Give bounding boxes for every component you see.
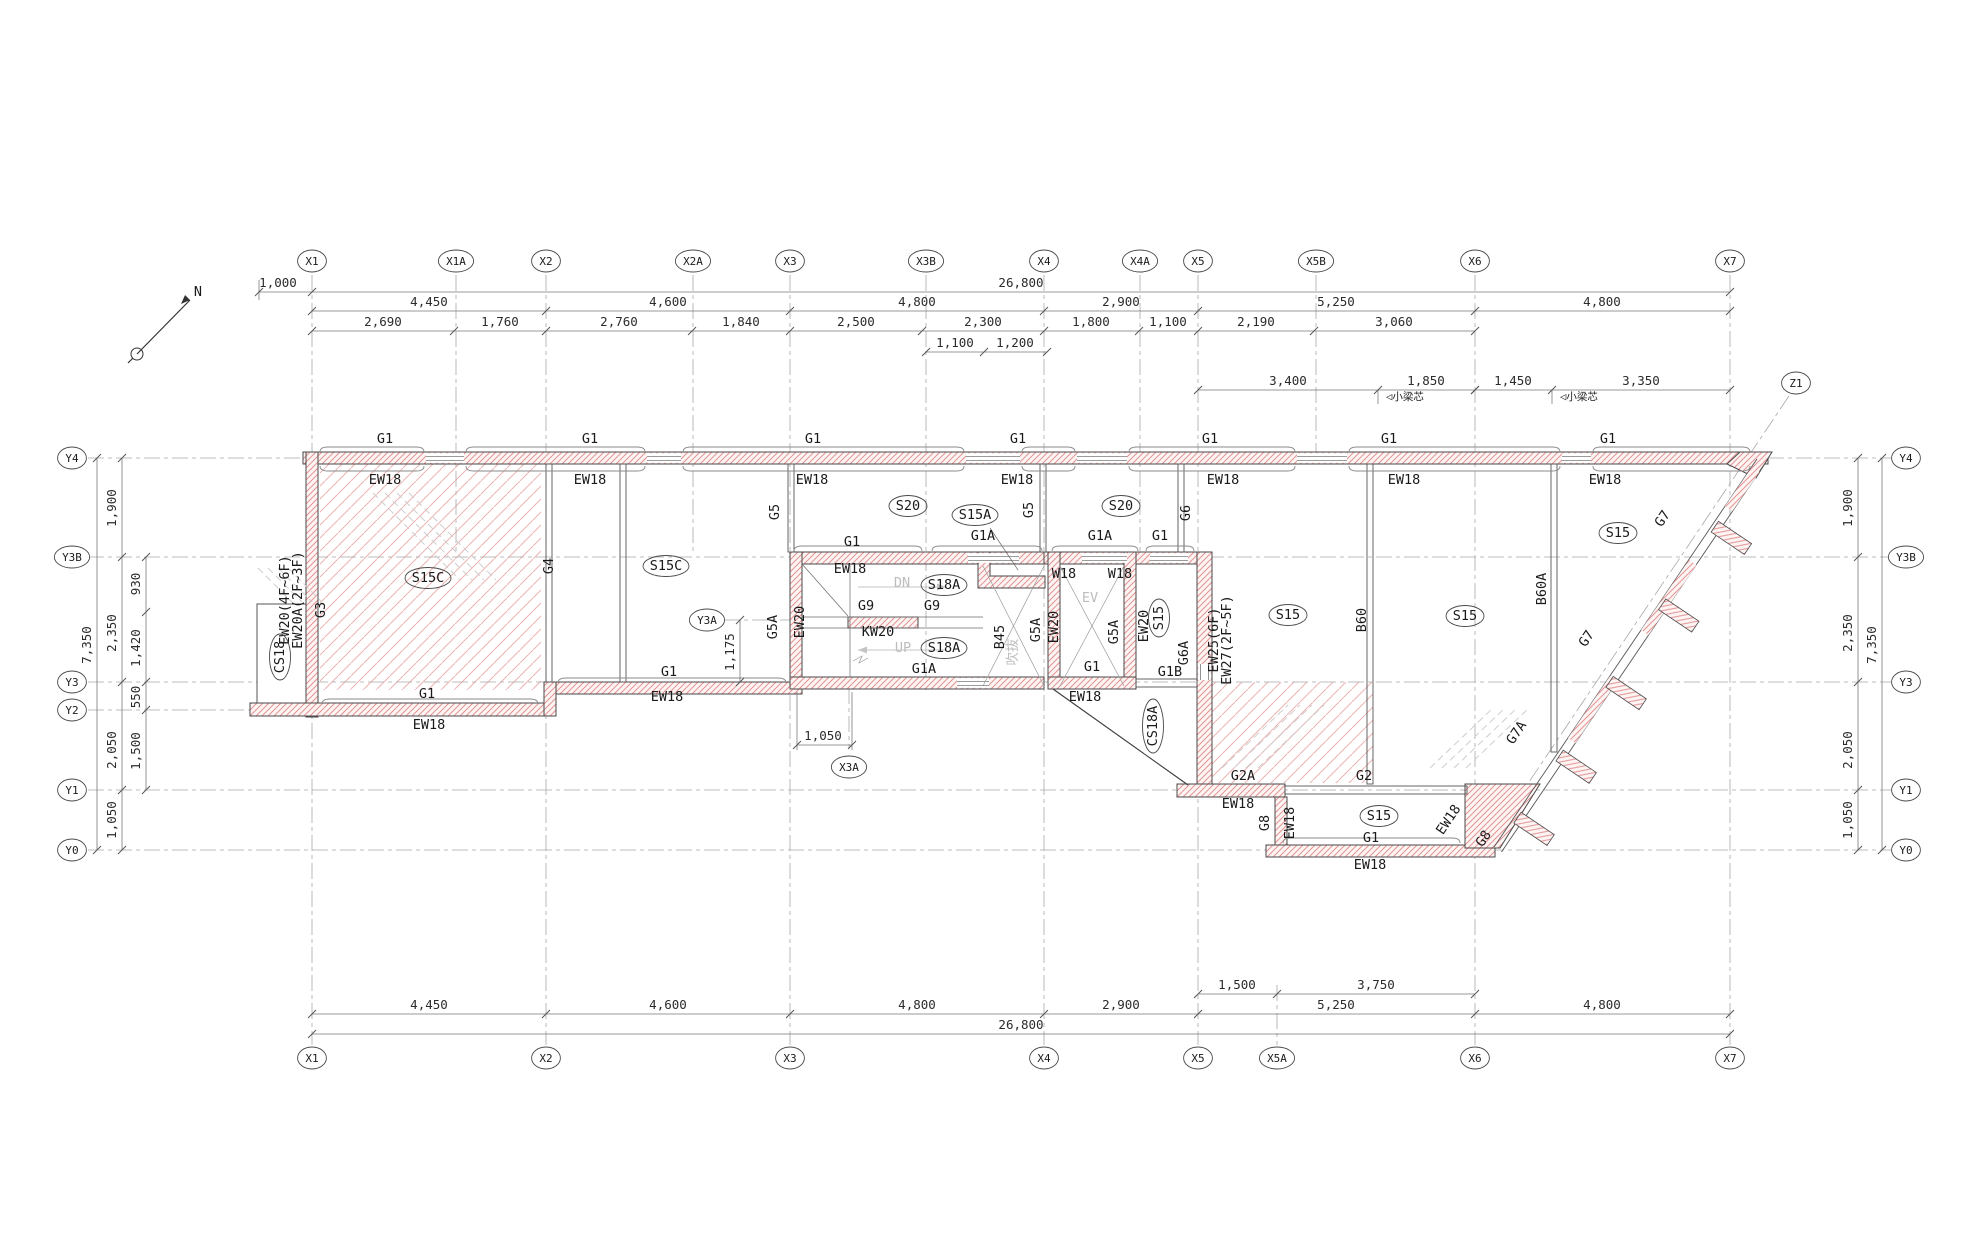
label-w18: W18	[1052, 566, 1076, 582]
beam-stub	[1606, 676, 1646, 709]
label-text: EW18	[1354, 857, 1387, 873]
grid-bubble-x1a: X1A	[438, 250, 473, 272]
grid-bubble-label: X1A	[446, 255, 466, 268]
label-text: G9	[858, 598, 874, 614]
label-g7: G7	[1652, 508, 1674, 530]
label-text: EW18	[651, 689, 684, 705]
label-g2a: G2A	[1231, 768, 1255, 784]
label-g7: G7	[1576, 628, 1598, 650]
label-text: G4	[541, 558, 557, 574]
label-ew18: EW18	[413, 717, 446, 733]
dim-text: 4,450	[410, 294, 448, 309]
label-g1a: G1A	[971, 528, 995, 544]
label-text: W18	[1052, 566, 1076, 582]
label-g1a: G1A	[912, 661, 936, 677]
label-g5: G5	[1021, 502, 1037, 518]
label-text: UP	[895, 640, 911, 656]
dim-text: 4,600	[649, 294, 687, 309]
label-g1: G1	[1152, 528, 1168, 544]
label-text: S20	[1109, 498, 1133, 514]
label-ew18: EW18	[369, 472, 402, 488]
stair-break-mark	[853, 656, 868, 663]
label-text: G5	[1021, 502, 1037, 518]
grid-bubble-y4: Y4	[58, 447, 87, 469]
grid-bubble-label: X5	[1191, 255, 1204, 268]
label-text: G1	[1010, 431, 1026, 447]
grid-bubble-x4a: X4A	[1122, 250, 1157, 272]
label-text: EW18	[834, 561, 867, 577]
beam-stub	[1659, 599, 1699, 632]
label-text: G9	[924, 598, 940, 614]
label-text: S15	[1151, 606, 1167, 630]
label-ev: EV	[1082, 590, 1098, 606]
grid-bubble-label: X6	[1468, 1052, 1481, 1065]
beam-bracket	[1593, 447, 1750, 452]
label-text: EW18	[1069, 689, 1102, 705]
wall-x1	[306, 452, 318, 717]
label-g1: G1	[661, 664, 677, 680]
dim-text: 4,800	[898, 997, 936, 1012]
grid-bubble-x2a: X2A	[675, 250, 710, 272]
beam-bracket	[683, 466, 964, 471]
label-text: G5	[767, 504, 783, 520]
label-s20: S20	[1102, 496, 1140, 517]
label-g5a: G5A	[765, 615, 781, 639]
label-text: G1B	[1158, 664, 1182, 680]
girder-g5-left	[788, 464, 794, 552]
grid-bubble-label: Y3	[1899, 676, 1912, 689]
label-w18: W18	[1108, 566, 1132, 582]
structural-plan-drawing: 1,00026,8004,4504,6004,8002,9005,2504,80…	[0, 0, 1980, 1260]
wall-y4	[303, 452, 1768, 464]
dim-text: 1,050	[104, 801, 119, 839]
grid-bubble-label: X3	[783, 1052, 796, 1065]
dim-text: 2,690	[364, 314, 402, 329]
dim-text: 550	[128, 686, 143, 709]
label-ew18: EW18	[1354, 857, 1387, 873]
label-text: W18	[1108, 566, 1132, 582]
beam-bracket	[1349, 466, 1560, 471]
label-text: G1A	[1088, 528, 1112, 544]
wall-step	[544, 682, 556, 716]
label-ew18: EW18	[1001, 472, 1034, 488]
dim-text: 2,190	[1237, 314, 1275, 329]
dim-text: 3,750	[1357, 977, 1395, 992]
dim-text: 1,840	[722, 314, 760, 329]
label-g9: G9	[858, 598, 874, 614]
label-ew20a2f3f: EW20A(2F~3F)	[290, 551, 306, 649]
label-text: G1	[377, 431, 393, 447]
label-text: 吹抜	[1005, 638, 1021, 666]
dim-text: 1,900	[1840, 489, 1855, 527]
dim-text: 2,300	[964, 314, 1002, 329]
label-ew18: EW18	[1222, 796, 1255, 812]
label-ew18: EW18	[1433, 802, 1464, 838]
label-s15c: S15C	[643, 556, 689, 577]
dim-text: 1,175	[722, 633, 737, 671]
dim-text: 2,760	[600, 314, 638, 329]
label-s20: S20	[889, 496, 927, 517]
label-text: G3	[313, 602, 329, 618]
label-text: EW18	[1282, 807, 1298, 840]
label-ew20: EW20	[792, 606, 808, 639]
beam-bracket	[1052, 546, 1138, 551]
label-n: N	[194, 284, 202, 300]
grid-bubble-x3a: X3A	[831, 756, 866, 778]
label-text: ◁小梁芯	[1560, 390, 1598, 403]
label-text: G7A	[1503, 718, 1530, 747]
label-text: EW18	[1222, 796, 1255, 812]
label-dn: DN	[894, 575, 910, 591]
label-text: EW18	[796, 472, 829, 488]
label-ew272f5f: EW27(2F~5F)	[1219, 595, 1235, 684]
grid-bubble-label: X7	[1723, 1052, 1736, 1065]
grid-bubble-x7: X7	[1716, 1047, 1745, 1069]
dim-text: 4,800	[1583, 294, 1621, 309]
grid-bubble-label: X7	[1723, 255, 1736, 268]
label-g1b: G1B	[1158, 664, 1182, 680]
dim-text: 1,760	[481, 314, 519, 329]
member-labels: G1G1G1G1G1G1G1EW18EW18EW18EW18EW18EW18EW…	[194, 284, 1674, 873]
grid-bubble-x5a: X5A	[1259, 1047, 1294, 1069]
wall-y2	[250, 703, 556, 716]
label-: ◁小梁芯	[1560, 390, 1598, 403]
grid-bubble-x2: X2	[532, 1047, 561, 1069]
label-text: S15	[1453, 608, 1477, 624]
label-g7a: G7A	[1503, 718, 1530, 747]
label-text: CS18	[272, 641, 288, 674]
grid-bubble-x4: X4	[1030, 1047, 1059, 1069]
label-g1: G1	[582, 431, 598, 447]
dim-text: 4,800	[1583, 997, 1621, 1012]
dim-text: 1,850	[1407, 373, 1445, 388]
beam-stub	[1711, 521, 1751, 554]
label-text: G1A	[971, 528, 995, 544]
grid-bubble-label: X6	[1468, 255, 1481, 268]
grid-bubble-x3: X3	[776, 250, 805, 272]
grid-bubble-label: X4	[1037, 1052, 1051, 1065]
label-text: G1A	[912, 661, 936, 677]
grid-bubble-x4: X4	[1030, 250, 1059, 272]
label-text: G1	[1084, 659, 1100, 675]
label-text: B60	[1354, 608, 1370, 632]
label-text: EW20	[792, 606, 808, 639]
label-text: EW18	[1433, 802, 1464, 838]
label-g1: G1	[1084, 659, 1100, 675]
arrowhead	[858, 647, 867, 654]
label-text: EW20A(2F~3F)	[290, 551, 306, 649]
grid-bubble-y3b: Y3B	[54, 546, 89, 568]
label-ew18: EW18	[651, 689, 684, 705]
grid-bubble-label: X5B	[1306, 255, 1326, 268]
label-text: S15	[1276, 607, 1300, 623]
label-g1: G1	[1010, 431, 1026, 447]
label-text: EV	[1082, 590, 1098, 606]
dim-text: 1,100	[936, 335, 974, 350]
dim-text: 3,400	[1269, 373, 1307, 388]
dim-text: 5,250	[1317, 294, 1355, 309]
grid-bubble-y1: Y1	[58, 779, 87, 801]
dim-text: 1,900	[104, 489, 119, 527]
grid-bubble-y2: Y2	[58, 699, 87, 721]
grid-bubble-label: X4A	[1130, 255, 1150, 268]
dim-text: 4,450	[410, 997, 448, 1012]
grid-bubble-label: X2A	[683, 255, 703, 268]
grid-bubble-y4: Y4	[1892, 447, 1921, 469]
beam-bracket	[1593, 466, 1750, 471]
dim-text: 2,500	[837, 314, 875, 329]
label-text: EW18	[369, 472, 402, 488]
label-g3: G3	[313, 602, 329, 618]
wall-stair-bottom	[790, 677, 1044, 689]
label-text: G1	[582, 431, 598, 447]
label-text: S15A	[959, 507, 992, 523]
grid-bubble-label: Y0	[1899, 844, 1912, 857]
label-up: UP	[895, 640, 911, 656]
grid-bubble-label: Y1	[65, 784, 78, 797]
grid-bubble-label: Y3B	[62, 551, 82, 564]
label-text: KW20	[862, 624, 895, 640]
dim-text: 7,350	[79, 626, 94, 664]
grid-bubble-x5: X5	[1184, 1047, 1213, 1069]
girder-partition	[620, 464, 626, 682]
grid-bubble-x6: X6	[1461, 1047, 1490, 1069]
label-g1a: G1A	[1088, 528, 1112, 544]
girder-b60a	[1551, 464, 1557, 752]
label-text: G2	[1356, 768, 1372, 784]
label-text: G6A	[1176, 641, 1192, 665]
label-text: G1	[1600, 431, 1616, 447]
wall-ev-bottom	[1048, 677, 1136, 689]
grid-bubble-y3b: Y3B	[1888, 546, 1923, 568]
label-g5a: G5A	[1106, 620, 1122, 644]
label-text: S15C	[412, 570, 445, 586]
label-s15: S15	[1599, 523, 1637, 544]
label-text: G1	[844, 534, 860, 550]
grid-bubble-y3: Y3	[58, 671, 87, 693]
label-text: G1	[419, 686, 435, 702]
label-g6: G6	[1178, 505, 1194, 521]
label-text: DN	[894, 575, 910, 591]
grid-bubble-label: X3B	[916, 255, 936, 268]
label-text: G1	[1363, 830, 1379, 846]
grid-bubble-y3a: Y3A	[689, 609, 724, 631]
dim-text: 1,420	[128, 629, 143, 667]
label-text: S15	[1606, 525, 1630, 541]
label-s15: S15	[1149, 599, 1170, 637]
label-text: G1	[1152, 528, 1168, 544]
dim-text: 1,050	[1840, 801, 1855, 839]
label-s15c: S15C	[405, 568, 451, 589]
beam-bracket	[320, 447, 424, 452]
grid-bubble-label: Y3	[65, 676, 78, 689]
grid-bubble-label: Z1	[1789, 377, 1802, 390]
dim-text: 1,100	[1149, 314, 1187, 329]
label-s18a: S18A	[921, 575, 967, 596]
label-text: EW18	[1589, 472, 1622, 488]
grid-bubble-x5b: X5B	[1298, 250, 1333, 272]
north-arrow	[128, 295, 190, 363]
dim-text: 1,000	[259, 275, 297, 290]
label-ew18: EW18	[1282, 807, 1298, 840]
label-text: EW18	[1207, 472, 1240, 488]
beam-bracket	[1349, 447, 1560, 452]
dim-text: 26,800	[998, 275, 1043, 290]
grid-bubble-x5: X5	[1184, 250, 1213, 272]
label-s15: S15	[1446, 606, 1484, 627]
beam-bracket	[683, 447, 964, 452]
label-s18a: S18A	[921, 638, 967, 659]
label-text: G7	[1652, 508, 1674, 530]
label-ew18: EW18	[1589, 472, 1622, 488]
label-g1: G1	[1600, 431, 1616, 447]
label-g1: G1	[419, 686, 435, 702]
label-ew18: EW18	[1069, 689, 1102, 705]
label-text: G5A	[765, 615, 781, 639]
label-text: EW18	[1388, 472, 1421, 488]
beam-bracket	[1129, 466, 1295, 471]
grid-bubble-label: Y1	[1899, 784, 1912, 797]
grid-bubble-label: Y2	[65, 704, 78, 717]
label-g5a: G5A	[1028, 618, 1044, 642]
label-: 吹抜	[1005, 638, 1021, 666]
label-text: EW18	[574, 472, 607, 488]
label-text: S18A	[928, 640, 961, 656]
label-cs18a: CS18A	[1143, 699, 1164, 753]
grid-bubble-x1: X1	[298, 250, 327, 272]
label-s15a: S15A	[952, 505, 998, 526]
dim-text: 2,350	[104, 614, 119, 652]
label-g5: G5	[767, 504, 783, 520]
grid-bubble-label: X4	[1037, 255, 1051, 268]
label-g1: G1	[844, 534, 860, 550]
grid-bubble-label: Y0	[65, 844, 78, 857]
dim-text: 2,350	[1840, 614, 1855, 652]
dim-text: 1,800	[1072, 314, 1110, 329]
dim-text: 7,350	[1864, 626, 1879, 664]
dim-text: 2,050	[1840, 731, 1855, 769]
dim-text: 26,800	[998, 1017, 1043, 1032]
label-g4: G4	[541, 558, 557, 574]
grid-bubble-label: X1	[305, 255, 318, 268]
label-kw20: KW20	[862, 624, 895, 640]
label-g1: G1	[1202, 431, 1218, 447]
label-g6a: G6A	[1176, 641, 1192, 665]
label-ew18: EW18	[574, 472, 607, 488]
label-b60a: B60A	[1534, 573, 1550, 606]
grid-bubble-x6: X6	[1461, 250, 1490, 272]
label-s15: S15	[1269, 605, 1307, 626]
label-text: EW18	[1001, 472, 1034, 488]
label-cs18: CS18	[270, 634, 291, 680]
grid-bubble-label: X5	[1191, 1052, 1204, 1065]
grid-bubble-x3: X3	[776, 1047, 805, 1069]
label-g1: G1	[1363, 830, 1379, 846]
beam-bracket	[466, 447, 645, 452]
dim-text: 3,060	[1375, 314, 1413, 329]
grid-bubble-y1: Y1	[1892, 779, 1921, 801]
beam-stub	[1514, 812, 1554, 845]
dim-text: 1,200	[996, 335, 1034, 350]
label-text: B60A	[1534, 573, 1550, 606]
label-text: G1	[661, 664, 677, 680]
dim-text: 3,350	[1622, 373, 1660, 388]
label-text: G1	[805, 431, 821, 447]
grid-bubble-label: X2	[539, 1052, 552, 1065]
beam-bracket	[1129, 447, 1295, 452]
label-s15: S15	[1360, 806, 1398, 827]
label-text: CS18A	[1145, 706, 1161, 747]
label-b60: B60	[1354, 608, 1370, 632]
label-text: S15C	[650, 558, 683, 574]
label-text: G6	[1178, 505, 1194, 521]
grid-bubble-y0: Y0	[1892, 839, 1921, 861]
dim-text: 2,050	[104, 731, 119, 769]
label-text: S15	[1367, 808, 1391, 824]
dim-text: 1,450	[1494, 373, 1532, 388]
grid-bubble-label: Y3A	[697, 614, 717, 627]
grid-bubble-y3: Y3	[1892, 671, 1921, 693]
grid-bubble-x7: X7	[1716, 250, 1745, 272]
grid-bubble-label: Y4	[1899, 452, 1913, 465]
grid-bubble-y0: Y0	[58, 839, 87, 861]
label-ew18: EW18	[1388, 472, 1421, 488]
label-ew18: EW18	[796, 472, 829, 488]
grid-bubble-label: X1	[305, 1052, 318, 1065]
grid-bubble-x3b: X3B	[908, 250, 943, 272]
label-g9: G9	[924, 598, 940, 614]
beam-bracket	[1022, 466, 1075, 471]
label-g2: G2	[1356, 768, 1372, 784]
beam-bracket	[932, 546, 1042, 551]
label-text: G7	[1576, 628, 1598, 650]
label-text: S18A	[928, 577, 961, 593]
label-text: S20	[896, 498, 920, 514]
dim-text: 5,250	[1317, 997, 1355, 1012]
grid-bubble-x2: X2	[532, 250, 561, 272]
beam-bracket	[1146, 546, 1194, 551]
dim-text: 1,500	[128, 732, 143, 770]
label-g8: G8	[1257, 815, 1273, 831]
dim-text: 1,050	[804, 728, 842, 743]
girder-g5-right	[1040, 464, 1046, 552]
grid-bubble-label: X3	[783, 255, 796, 268]
dim-text: 4,600	[649, 997, 687, 1012]
beam-bracket	[1022, 447, 1075, 452]
floor-plan-canvas: 1,00026,8004,4504,6004,8002,9005,2504,80…	[0, 0, 1980, 1260]
grid-bubble-z1: Z1	[1782, 372, 1811, 394]
dim-text: 2,900	[1102, 997, 1140, 1012]
dim-text: 930	[128, 573, 143, 596]
wall-y0	[1266, 845, 1495, 857]
label-text: G2A	[1231, 768, 1255, 784]
beam-stub	[1556, 750, 1596, 783]
girder-g1b	[1136, 679, 1197, 687]
label-text: G1	[1381, 431, 1397, 447]
north-arrowhead	[181, 295, 190, 304]
grid-bubble-label: Y3B	[1896, 551, 1916, 564]
label-text: G8	[1257, 815, 1273, 831]
label-text: ◁小梁芯	[1386, 390, 1424, 403]
label-: ◁小梁芯	[1386, 390, 1424, 403]
grid-bubble-label: X2	[539, 255, 552, 268]
label-text: G5A	[1106, 620, 1122, 644]
dim-text: 4,800	[898, 294, 936, 309]
grid-bubble-x1: X1	[298, 1047, 327, 1069]
grid-bubble-label: X5A	[1267, 1052, 1287, 1065]
label-g1: G1	[377, 431, 393, 447]
label-g1: G1	[1381, 431, 1397, 447]
